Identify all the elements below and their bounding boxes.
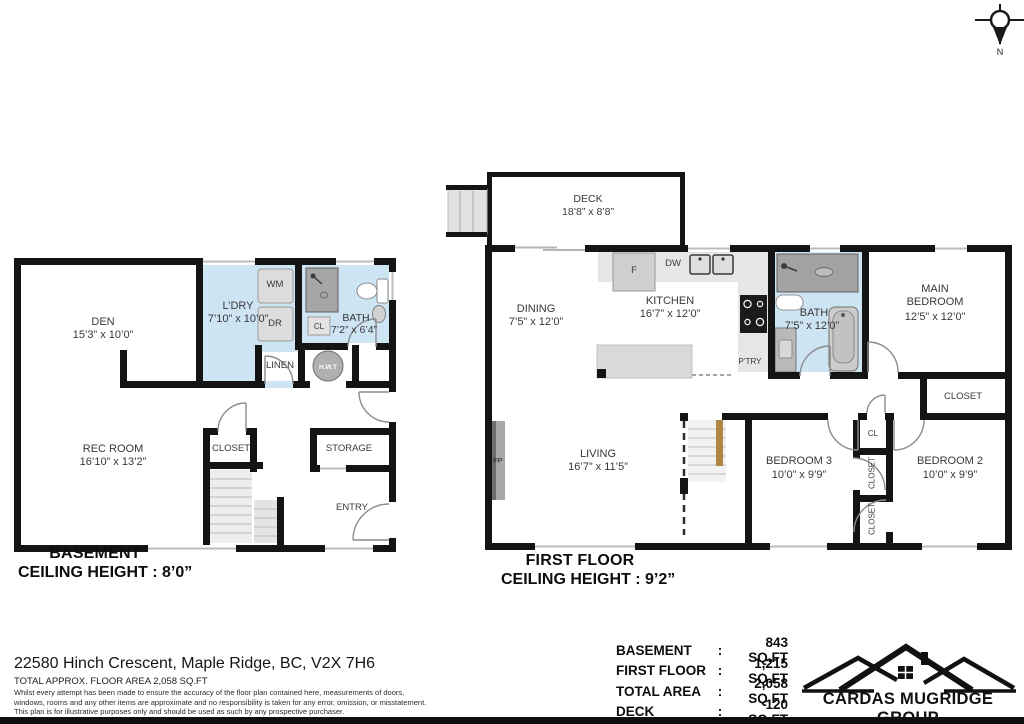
room-dining-dims: 7’5” x 12’0” xyxy=(509,316,563,328)
area-separator: : xyxy=(714,663,726,678)
bottom-border-bar xyxy=(0,717,1024,724)
logo-roof-icon xyxy=(802,647,1016,691)
closet-cl-label: CL xyxy=(868,428,878,440)
area-label: BASEMENT xyxy=(616,643,714,658)
room-living-name: LIVING xyxy=(580,448,616,460)
stair-railing-icon xyxy=(716,420,723,466)
room-closet-b-label: CLOSET xyxy=(212,443,250,455)
room-den-dims: 15’3” x 10’0” xyxy=(73,329,134,341)
room-closet-main-label: CLOSET xyxy=(944,391,982,403)
room-bedroom2-name: BEDROOM 2 xyxy=(917,455,983,467)
fridge-label: F xyxy=(631,265,637,277)
room-dining-name: DINING xyxy=(517,303,556,315)
washer-label: WM xyxy=(267,279,284,291)
room-main-bedroom-name2: BEDROOM xyxy=(907,296,964,308)
room-linen-label: LINEN xyxy=(266,360,294,372)
floorplan-graphics xyxy=(0,0,1024,724)
area-label: FIRST FLOOR xyxy=(616,663,714,678)
basement-stairs-icon xyxy=(210,470,277,543)
stove-icon xyxy=(740,295,767,333)
vanity-icon-ff xyxy=(775,328,796,372)
basement-title: BASEMENT xyxy=(49,545,140,563)
closet-vertical-1-label: CLOSET xyxy=(868,457,877,489)
floorplan-page: N DEN 15’3” x 10’0” L’DRY 7’10” x 10’0” … xyxy=(0,0,1024,724)
basement-ceiling-height: CEILING HEIGHT : 8’0” xyxy=(18,564,192,582)
closet-vertical-2-label: CLOSET xyxy=(868,503,877,535)
dryer-label: DR xyxy=(268,318,282,330)
room-bath-b-dims: 7’2” x 6’4” xyxy=(331,324,377,336)
stairs-icon-ff xyxy=(688,420,726,482)
disclaimer-line-1: Whilst every attempt has been made to en… xyxy=(14,688,404,698)
room-rec-dims: 16’10” x 13’2” xyxy=(80,456,147,468)
property-address: 22580 Hinch Crescent, Maple Ridge, BC, V… xyxy=(14,655,375,673)
room-main-bedroom-name1: MAIN xyxy=(921,283,949,295)
disclaimer-line-3: This plan is for illustrative purposes o… xyxy=(14,707,344,717)
island-counter xyxy=(597,345,692,378)
first-floor-title: FIRST FLOOR xyxy=(526,552,635,570)
room-bedroom2-dims: 10’0” x 9’9” xyxy=(923,469,977,481)
room-living-dims: 16’7” x 11’5” xyxy=(568,461,628,473)
sink-icon xyxy=(373,306,386,323)
room-rec-name: REC ROOM xyxy=(83,443,144,455)
north-compass-icon xyxy=(975,4,1024,45)
closet-small-label: CL xyxy=(314,321,324,333)
room-bath-ff-name: BATH xyxy=(800,307,829,319)
stair-open-rail xyxy=(680,413,688,535)
area-separator: : xyxy=(714,643,726,658)
room-bath-b-name: BATH xyxy=(342,312,369,324)
area-label: TOTAL AREA xyxy=(616,684,714,699)
fireplace-label: FP xyxy=(493,455,503,467)
room-den-name: DEN xyxy=(91,316,114,328)
area-separator: : xyxy=(714,684,726,699)
room-laundry-name: L’DRY xyxy=(223,300,254,312)
room-deck-name: DECK xyxy=(573,193,602,205)
room-deck-dims: 18’8” x 8’8” xyxy=(562,206,614,218)
disclaimer-line-2: windows, rooms and any other items are a… xyxy=(14,698,426,708)
deck-steps-icon xyxy=(446,185,487,237)
room-bath-ff-dims: 7’5” x 12’0” xyxy=(785,320,839,332)
shower-icon xyxy=(306,268,338,312)
first-floor-ceiling-height: CEILING HEIGHT : 9’2” xyxy=(501,571,675,589)
room-storage-label: STORAGE xyxy=(326,443,372,455)
room-bedroom3-dims: 10’0” x 9’9” xyxy=(772,469,826,481)
pantry-label: P’TRY xyxy=(739,356,762,368)
room-entry-label: ENTRY xyxy=(336,502,368,514)
room-bedroom3-name: BEDROOM 3 xyxy=(766,455,832,467)
dishwasher-label: DW xyxy=(665,258,681,270)
total-floor-area-line: TOTAL APPROX. FLOOR AREA 2,058 SQ.FT xyxy=(14,676,208,687)
room-kitchen-dims: 16’7” x 12’0” xyxy=(640,308,701,320)
compass-north-label: N xyxy=(997,47,1004,57)
shower-icon-ff xyxy=(777,254,858,292)
water-tank-label: H.W.T xyxy=(319,362,337,374)
tub-icon-ff xyxy=(829,307,858,371)
area-table: BASEMENT : 843 SQ.FT FIRST FLOOR : 1,215… xyxy=(616,640,788,722)
room-main-bedroom-dims: 12’5” x 12’0” xyxy=(905,311,966,323)
room-laundry-dims: 7’10” x 10’0” xyxy=(208,313,269,325)
room-kitchen-name: KITCHEN xyxy=(646,295,694,307)
